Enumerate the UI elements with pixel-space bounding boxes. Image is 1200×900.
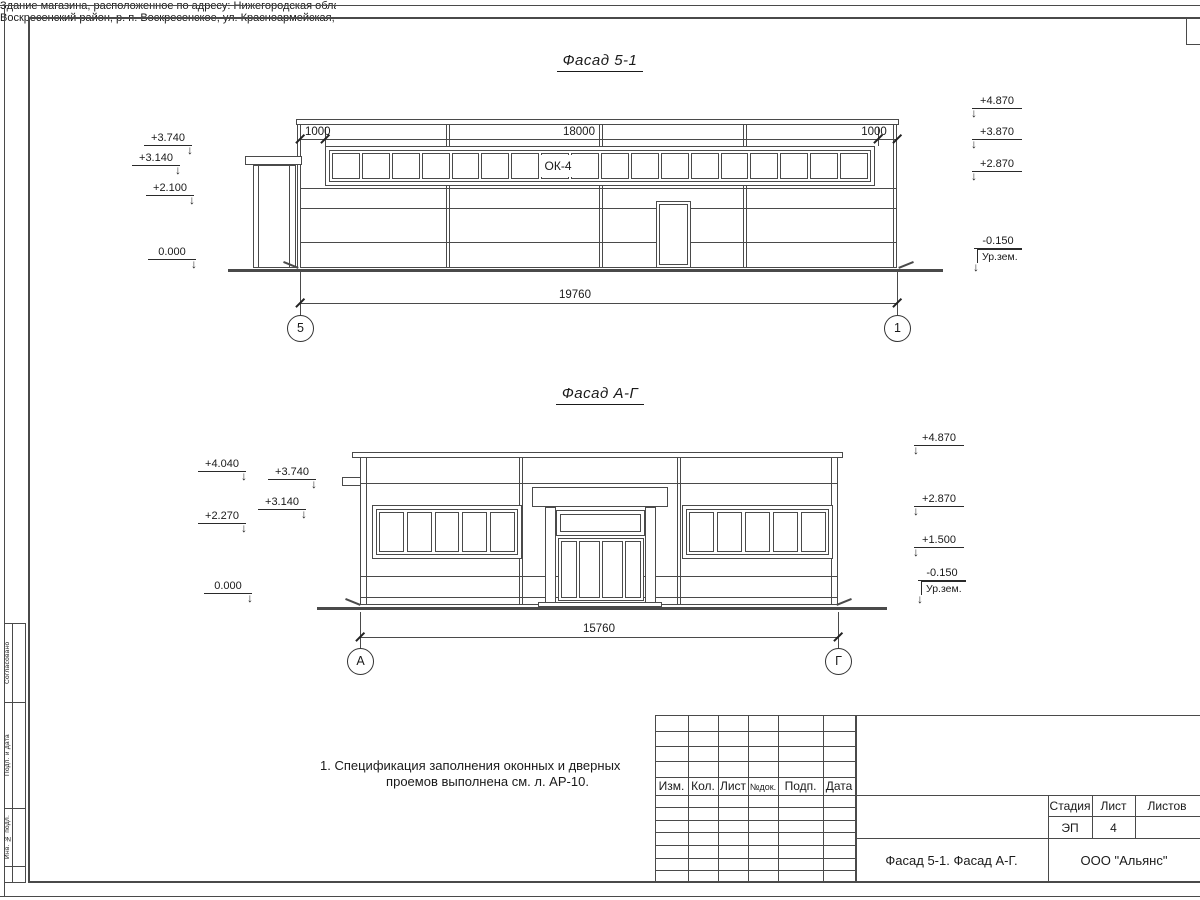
side-stamp-line [4,702,26,703]
titleblock-grid-line [655,795,855,796]
window-pane [631,153,659,179]
facade2-axis-leader [838,612,839,648]
window-pane [840,153,868,179]
titleblock-grid-line [655,746,855,747]
titleblock-grid-line [655,777,855,778]
titleblock-grid-line [655,761,855,762]
elevation-value: +3.140 [258,496,306,510]
facade2-entrance-canopy [532,487,668,507]
window-pane [579,541,600,598]
titleblock-col-kol: Кол. [688,779,718,793]
elevation-mark: +4.040↓ [198,458,246,472]
facade1-window-band [329,150,871,182]
window-pane [452,153,480,179]
elevation-value: +2.870 [972,158,1022,172]
titleblock-grid-line [655,845,855,846]
down-arrow-icon: ↓ [175,165,181,175]
facade2-transom-glass [560,514,641,532]
company-name: ООО "Альянс" [1048,853,1200,868]
project-address-line1: Здание магазина, расположенное по адресу… [0,0,336,12]
elevation-value: +3.870 [972,126,1022,140]
elevation-mark: +3.140↓ [258,496,306,510]
titleblock-grid-line [655,870,855,871]
ground-level-label: Ур.зем. [921,581,966,595]
facade1-tower-inner [258,165,290,268]
drawing-sheet: Фасад 5-1 ОК-4 1000 18000 1000 19760 5 1… [0,0,1200,900]
elevation-mark: +2.870↓ [914,493,964,507]
down-arrow-icon: ↓ [971,139,977,149]
facade1-title-text: Фасад 5-1 [557,52,644,72]
window-pane [625,541,641,598]
facade2-entrance-post-left [545,507,556,603]
down-arrow-icon: ↓ [917,594,923,604]
outer-border-bottom [0,896,1200,897]
window-pane [490,512,515,552]
elevation-mark: +3.740↓ [268,466,316,480]
sheet-number: 4 [1092,821,1135,835]
titleblock-grid-line [855,838,1200,839]
window-pane [407,512,432,552]
down-arrow-icon: ↓ [191,259,197,269]
down-arrow-icon: ↓ [913,547,919,557]
stage-label: Стадия [1048,799,1092,813]
titleblock-grid-line [655,832,855,833]
elevation-value: 0.000 [204,580,252,594]
side-stamp-label-podp-data: Подп. и дата [4,704,12,806]
titleblock-grid-line [1048,816,1200,817]
elevation-value: +2.100 [146,182,194,196]
facade1-window-band-label: ОК-4 [540,155,576,177]
facade2-dim-total: 15760 [564,623,634,635]
window-pane [810,153,838,179]
side-stamp-label-inv-podl: Инв. № подл. [4,810,12,864]
down-arrow-icon: ↓ [971,108,977,118]
titleblock-grid-line [655,731,855,732]
sheets-label: Листов [1137,799,1197,813]
facade2-left-edge-line [366,457,367,605]
down-arrow-icon: ↓ [311,479,317,489]
elevation-value: +3.740 [144,132,192,146]
facade1-dim-1000-right: 1000 [854,126,894,138]
elevation-mark: +3.740↓ [144,132,192,146]
down-arrow-icon: ↓ [247,593,253,603]
elevation-mark: +2.270↓ [198,510,246,524]
titleblock-col-data: Дата [823,779,855,793]
window-pane [462,512,487,552]
window-pane [691,153,719,179]
facade1-dim-total: 19760 [540,289,610,301]
facade1-axis-leader [300,272,301,315]
titleblock-col-ndoc: №док. [748,782,778,792]
down-arrow-icon: ↓ [913,506,919,516]
window-pane [332,153,360,179]
ground-level-label: Ур.зем. [977,249,1022,263]
facade1-dim-1000-left: 1000 [305,126,349,138]
window-pane [780,153,808,179]
axis-circle-G: Г [825,648,852,675]
window-pane [661,153,689,179]
facade1-left-edge-line [297,124,298,268]
facade2-right-window [686,509,829,555]
corner-stamp-box-bottom [1186,44,1200,45]
elevation-mark: +3.870↓ [972,126,1022,140]
window-pane [750,153,778,179]
titleblock-grid-line [655,858,855,859]
note-line1: 1. Спецификация заполнения оконных и две… [320,758,655,774]
elevation-value: 0.000 [148,246,196,260]
window-pane [481,153,509,179]
window-pane [362,153,390,179]
down-arrow-icon: ↓ [971,171,977,181]
elevation-value: -0.150 [918,567,966,581]
facade1-dim-line-top [300,139,897,140]
facade2-entrance-post-right [645,507,656,603]
side-stamp-line [4,866,26,867]
down-arrow-icon: ↓ [301,509,307,519]
down-arrow-icon: ↓ [189,195,195,205]
facade1-dim-18000: 18000 [544,126,614,138]
note-line2: проемов выполнена см. л. АР-10. [320,774,655,790]
down-arrow-icon: ↓ [241,523,247,533]
elevation-mark: 0.000↓ [148,246,196,260]
window-pane [801,512,826,552]
facade2-title: Фасад А-Г [500,385,700,402]
down-arrow-icon: ↓ [187,145,193,155]
facade2-wall-pipe [342,477,361,486]
corner-stamp-box-left [1186,17,1187,44]
window-pane [773,512,798,552]
window-pane [717,512,742,552]
elevation-value: +4.040 [198,458,246,472]
titleblock-grid-line [855,795,1200,796]
elevation-value: +1.500 [914,534,964,548]
facade1-ground-line [228,269,943,272]
facade1-axis-leader [897,272,898,315]
elevation-value: +3.740 [268,466,316,480]
facade1-tower-cap [245,156,302,165]
elevation-value: +2.270 [198,510,246,524]
facade2-entrance-door [558,538,644,601]
drawing-title: Фасад 5-1. Фасад А-Г. [855,853,1048,868]
window-pane [511,153,539,179]
elevation-value: +4.870 [972,95,1022,109]
elevation-mark: +1.500↓ [914,534,964,548]
facade2-axis-leader [360,612,361,648]
facade2-left-window [376,509,518,555]
window-pane [435,512,460,552]
facade1-right-edge-line [893,124,894,268]
titleblock-grid-line [655,807,855,808]
side-stamp-label-soglasovano: Согласовано [4,625,12,700]
axis-circle-5: 5 [287,315,314,342]
window-pane [602,541,623,598]
down-arrow-icon: ↓ [973,262,979,272]
window-pane [745,512,770,552]
titleblock-grid-line [655,820,855,821]
facade1-dim-line-bottom [300,303,897,304]
elevation-value: +2.870 [914,493,964,507]
window-pane [601,153,629,179]
axis-circle-A: А [347,648,374,675]
side-stamp-line [4,808,26,809]
elevation-mark: +4.870↓ [972,95,1022,109]
outer-border-top [0,5,1200,6]
elevation-mark: +3.140↓ [132,152,180,166]
elevation-mark: +4.870↓ [914,432,964,446]
window-pane [561,541,577,598]
facade1-door [659,204,688,265]
elevation-value: +3.140 [132,152,180,166]
window-pane [422,153,450,179]
window-pane [721,153,749,179]
elevation-mark: 0.000↓ [204,580,252,594]
facade2-panel-joint [677,457,681,605]
window-pane [689,512,714,552]
down-arrow-icon: ↓ [913,445,919,455]
facade2-siding-line [361,483,837,484]
facade2-ground-line [317,607,887,610]
facade2-dim-line [360,637,838,638]
side-stamp-divider [12,623,13,883]
titleblock-col-izm: Изм. [655,779,688,793]
window-pane [379,512,404,552]
elevation-mark: +2.100↓ [146,182,194,196]
facade1-title: Фасад 5-1 [500,52,700,69]
elevation-value: +4.870 [914,432,964,446]
elevation-mark-ground: -0.150Ур.зем.↓ [974,235,1022,249]
facade2-title-text: Фасад А-Г [556,385,644,405]
sheet-label: Лист [1092,799,1135,813]
titleblock-col-list: Лист [718,779,748,793]
elevation-mark: +2.870↓ [972,158,1022,172]
titleblock-col-podp: Подп. [778,779,823,793]
elevation-value: -0.150 [974,235,1022,249]
elevation-mark-ground: -0.150Ур.зем.↓ [918,567,966,581]
down-arrow-icon: ↓ [241,471,247,481]
window-pane [392,153,420,179]
axis-circle-1: 1 [884,315,911,342]
stage-value: ЭП [1048,821,1092,835]
